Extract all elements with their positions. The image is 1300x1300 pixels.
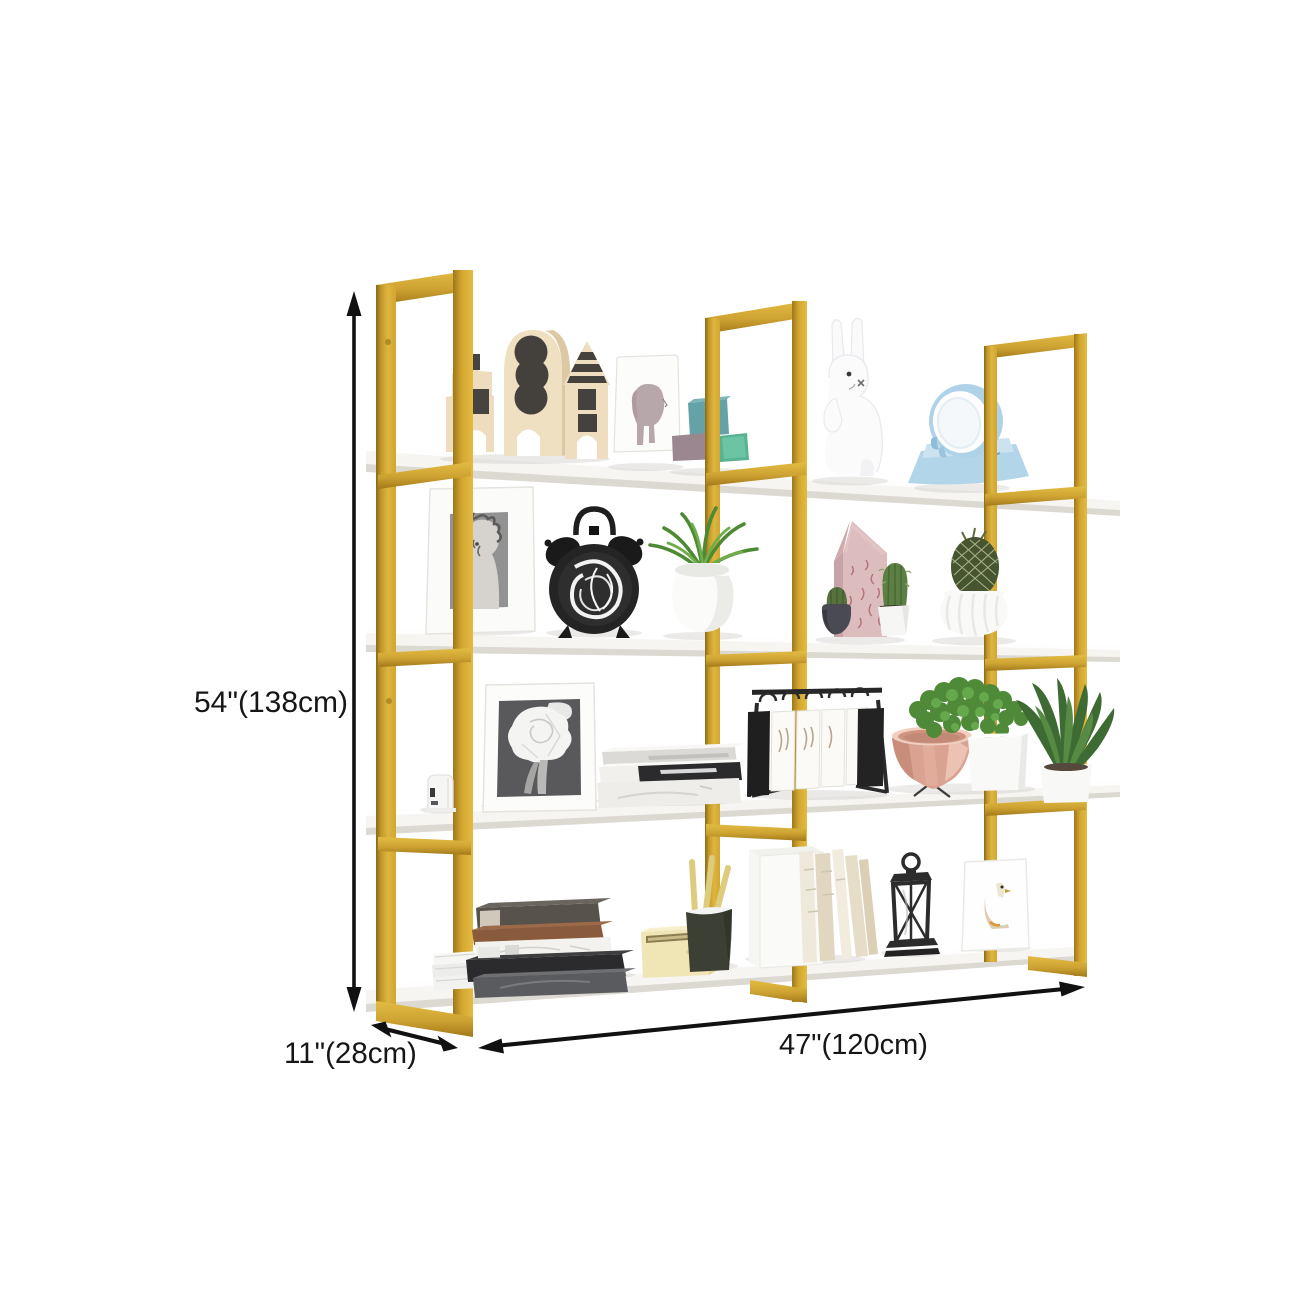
svg-text:11"(28cm): 11"(28cm) — [284, 1037, 417, 1070]
svg-text:47"(120cm): 47"(120cm) — [779, 1029, 928, 1061]
svg-text:54"(138cm): 54"(138cm) — [194, 686, 348, 719]
